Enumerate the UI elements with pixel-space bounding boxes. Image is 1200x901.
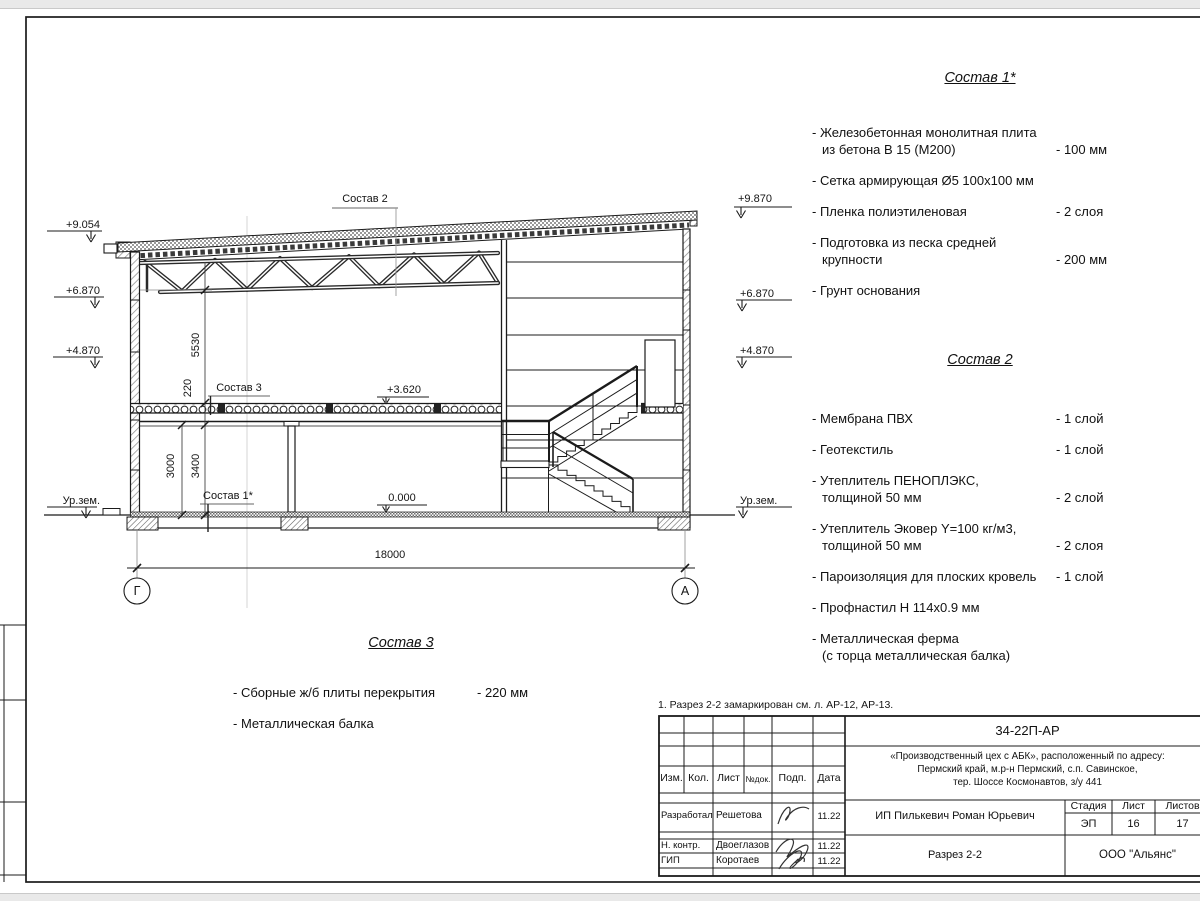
row-name-1: Решетова xyxy=(716,810,762,821)
list-item: - Мембрана ПВХ- 1 слой xyxy=(812,410,1148,427)
row-date-3: 11.22 xyxy=(813,856,845,867)
row-role-2: Н. контр. xyxy=(661,840,700,851)
sostav3-section: Состав 3 - Сборные ж/б плиты перекрытия-… xyxy=(233,635,569,746)
interior-wall xyxy=(502,240,507,512)
ground-floor xyxy=(44,509,735,531)
sostav1-section: Состав 1* - Железобетонная монолитная пл… xyxy=(812,70,1148,313)
floor-slab xyxy=(131,404,684,414)
level-left-3: +4.870 xyxy=(40,345,100,357)
level-right-2: +6.870 xyxy=(740,288,800,300)
row-date-1: 11.22 xyxy=(813,811,845,822)
sostav2-title: Состав 2 xyxy=(812,352,1148,368)
level-slab: +3.620 xyxy=(376,384,432,396)
leader-label-roof: Состав 2 xyxy=(333,193,397,205)
stage-value: ЭП xyxy=(1065,818,1112,830)
sheet-label: Лист xyxy=(1112,800,1155,812)
level-left-2: +6.870 xyxy=(40,285,100,297)
dim-220: 220 xyxy=(182,366,194,410)
list-item: - Грунт основания xyxy=(812,282,1148,299)
row-name-2: Двоеглазов xyxy=(716,840,769,851)
sheets-value: 17 xyxy=(1155,818,1200,830)
level-floor: 0.000 xyxy=(376,492,428,504)
list-item: - Подготовка из песка среднейкрупности- … xyxy=(812,234,1148,268)
project-line-2: Пермский край, м.р-н Пермский, с.п. Сави… xyxy=(845,763,1200,776)
roof xyxy=(104,211,697,260)
col-izm: Изм. xyxy=(659,772,684,784)
project-line-1: «Производственный цех с АБК», расположен… xyxy=(845,750,1200,763)
lower-flight-steps xyxy=(549,465,630,512)
drawing-sheet-page: { "drawing": { "leader_top": "Состав 2",… xyxy=(0,0,1200,900)
level-right-ground: Ур.зем. xyxy=(740,495,800,507)
level-left-1: +9.054 xyxy=(40,219,100,231)
list-item: - Сетка армирующая Ø5 100x100 мм xyxy=(812,172,1148,189)
leader-label-slab: Состав 3 xyxy=(208,382,270,394)
signature-nkontr xyxy=(776,839,808,863)
client-name: ИП Пилькевич Роман Юрьевич xyxy=(845,810,1065,822)
col-list: Лист xyxy=(713,772,744,784)
door-opening xyxy=(645,340,675,407)
sostav2-section: Состав 2 - Мембрана ПВХ- 1 слой - Геотек… xyxy=(812,352,1148,678)
sostav1-title: Состав 1* xyxy=(812,70,1148,86)
list-item: - Пленка полиэтиленовая- 2 слоя xyxy=(812,203,1148,220)
stairs xyxy=(501,366,637,517)
dim-3400: 3400 xyxy=(190,444,202,488)
list-item: - Утеплитель ПЕНОПЛЭКС,толщиной 50 мм- 2… xyxy=(812,472,1148,506)
row-name-3: Коротаев xyxy=(716,855,759,866)
level-left-ground: Ур.зем. xyxy=(40,495,100,507)
axis-letter-right: А xyxy=(673,584,697,598)
sheet-title: Разрез 2-2 xyxy=(845,849,1065,861)
signature-razrabotal xyxy=(778,807,809,824)
list-item: - Металлическая ферма(с торца металличес… xyxy=(812,630,1148,664)
row-date-2: 11.22 xyxy=(813,841,845,852)
list-item: - Профнастил Н 114x0.9 мм xyxy=(812,599,1148,616)
truss xyxy=(140,253,498,293)
col-kol: Кол. xyxy=(684,772,713,784)
list-item: - Сборные ж/б плиты перекрытия- 220 мм xyxy=(233,684,569,701)
list-item: - Металлическая балка xyxy=(233,715,569,732)
sheet-note: 1. Разрез 2-2 замаркирован см. л. АР-12,… xyxy=(658,699,893,711)
list-item: - Геотекстиль- 1 слой xyxy=(812,441,1148,458)
dim-3000: 3000 xyxy=(165,444,177,488)
list-item: - Утеплитель Эковер Y=100 кг/м3,толщиной… xyxy=(812,520,1148,554)
span-dimension xyxy=(124,531,698,604)
landing xyxy=(501,461,549,468)
company-name: ООО "Альянс" xyxy=(1065,849,1200,861)
sostav3-title: Состав 3 xyxy=(233,635,569,651)
axis-letter-left: Г xyxy=(125,584,149,598)
leader-label-floor: Состав 1* xyxy=(200,490,256,502)
sheets-label: Листов xyxy=(1155,800,1200,812)
stage-label: Стадия xyxy=(1065,800,1112,812)
sheet-value: 16 xyxy=(1112,818,1155,830)
signatures xyxy=(776,807,809,869)
col-data: Дата xyxy=(813,772,845,784)
doc-number: 34-22П-АР xyxy=(845,723,1200,738)
level-right-3: +4.870 xyxy=(740,345,800,357)
list-item: - Железобетонная монолитная плитаиз бето… xyxy=(812,124,1148,158)
dim-18000: 18000 xyxy=(355,549,425,561)
walls xyxy=(131,229,691,515)
project-line-3: тер. Шоссе Космонавтов, з/у 441 xyxy=(845,776,1200,789)
row-role-1: Разработал xyxy=(661,810,713,821)
dim-5530: 5530 xyxy=(190,323,202,367)
left-wall xyxy=(131,252,140,515)
level-right-1: +9.870 xyxy=(738,193,798,205)
col-podp: Подп. xyxy=(772,772,813,784)
col-ndok: №док. xyxy=(744,774,772,784)
list-item: - Пароизоляция для плоских кровель- 1 сл… xyxy=(812,568,1148,585)
row-role-3: ГИП xyxy=(661,855,680,866)
column xyxy=(288,426,295,512)
